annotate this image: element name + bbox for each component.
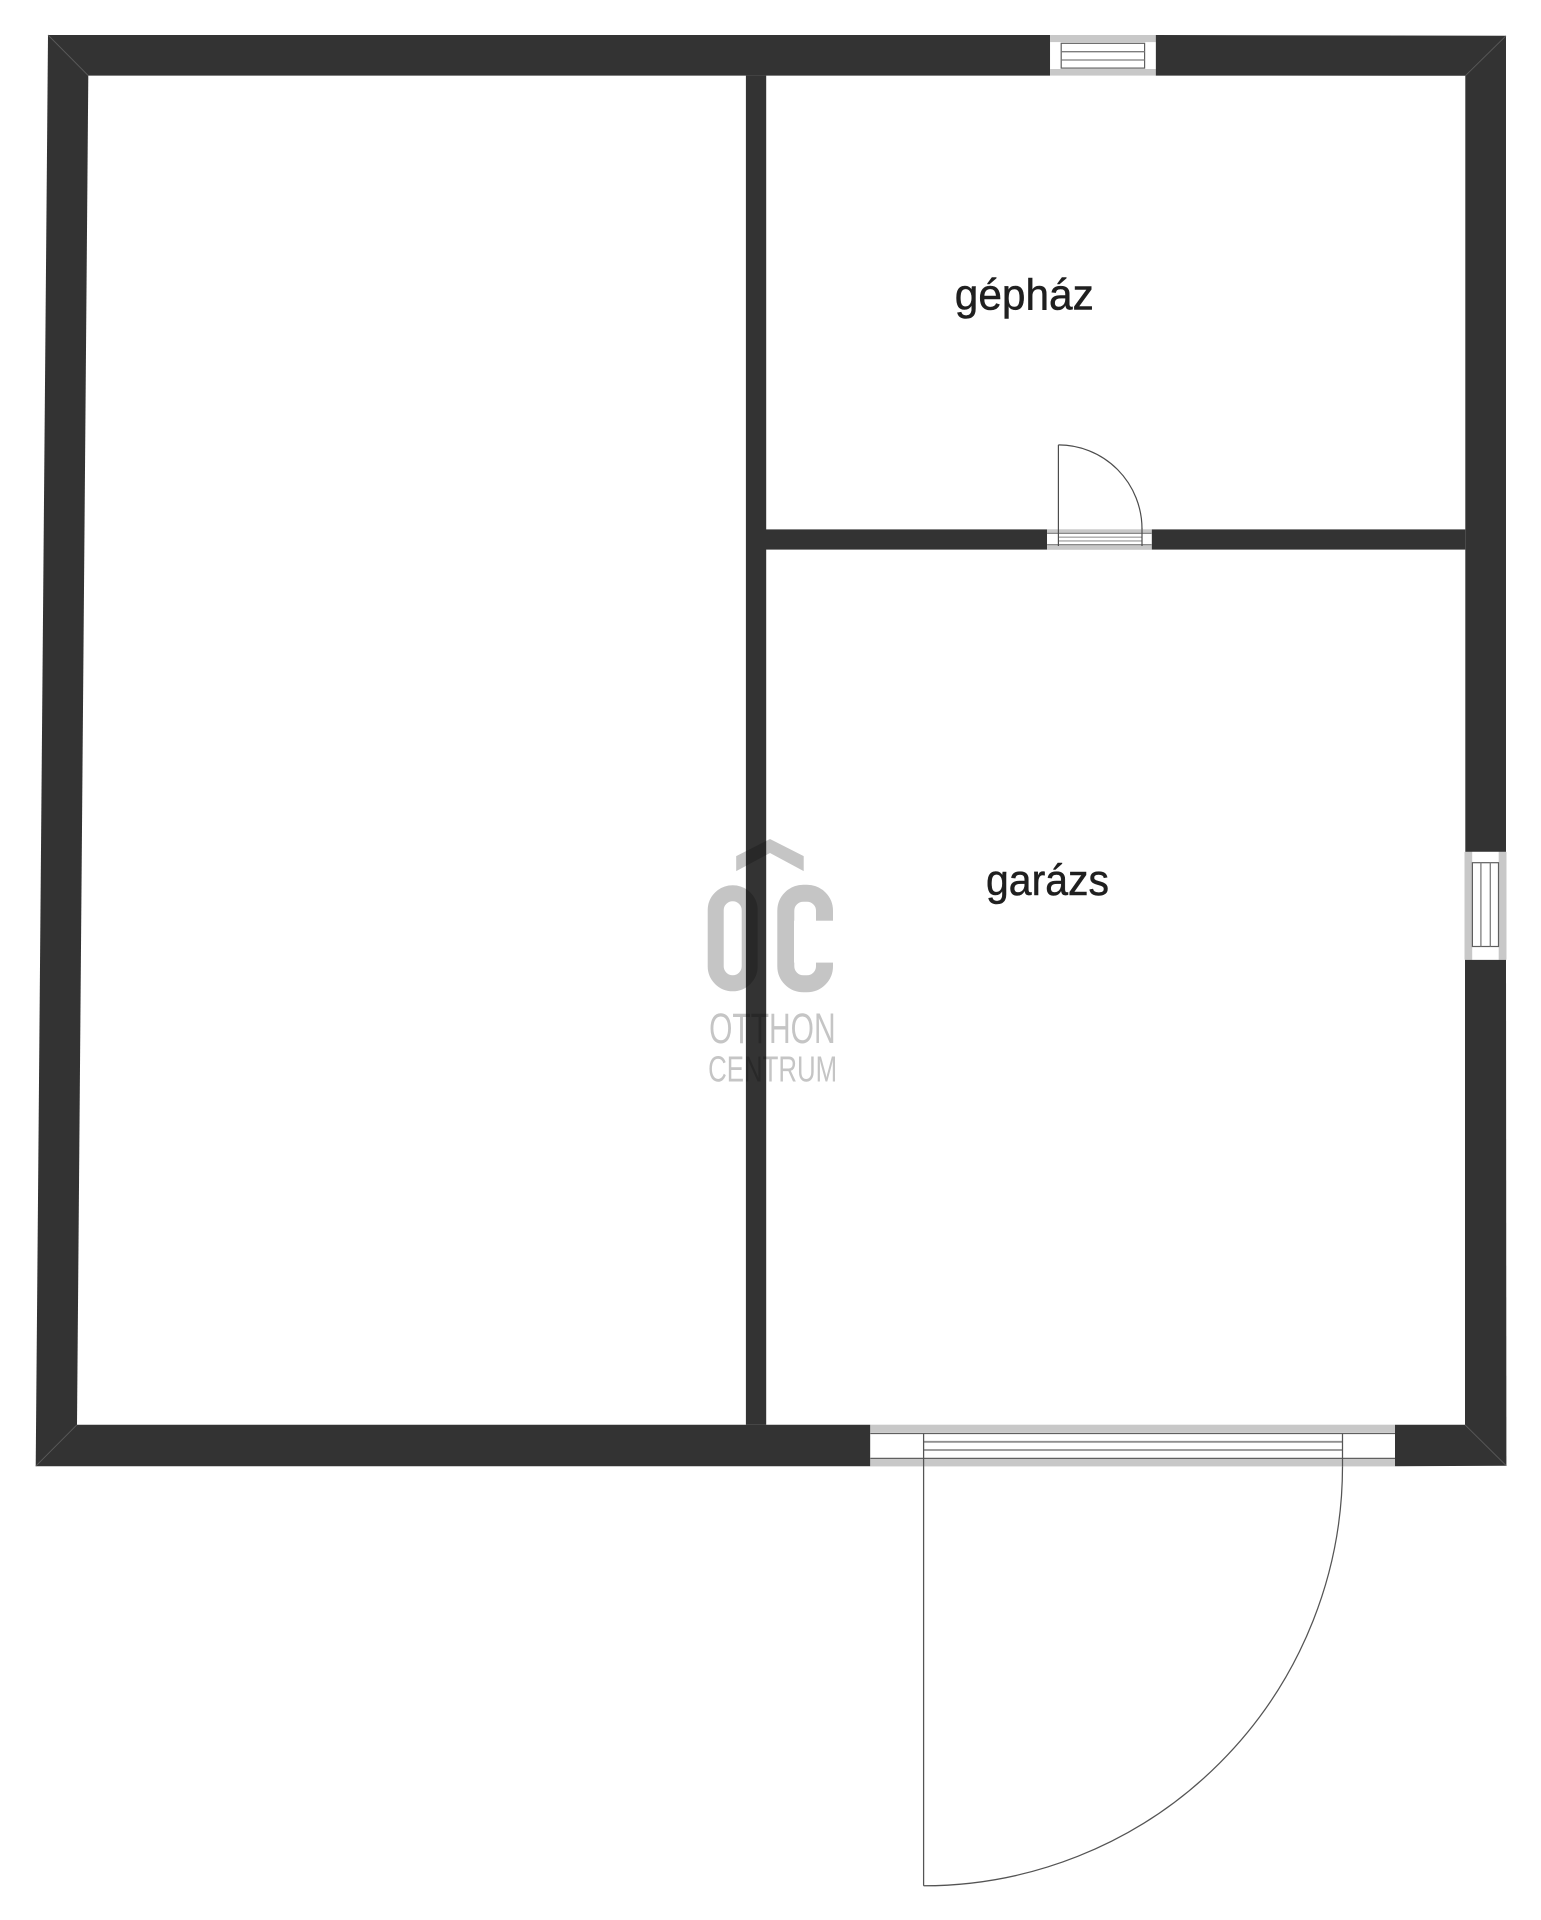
svg-text:OTTHON: OTTHON <box>709 1005 836 1053</box>
svg-text:garázs: garázs <box>986 857 1109 905</box>
svg-text:gépház: gépház <box>955 271 1094 319</box>
svg-text:CENTRUM: CENTRUM <box>708 1049 837 1090</box>
